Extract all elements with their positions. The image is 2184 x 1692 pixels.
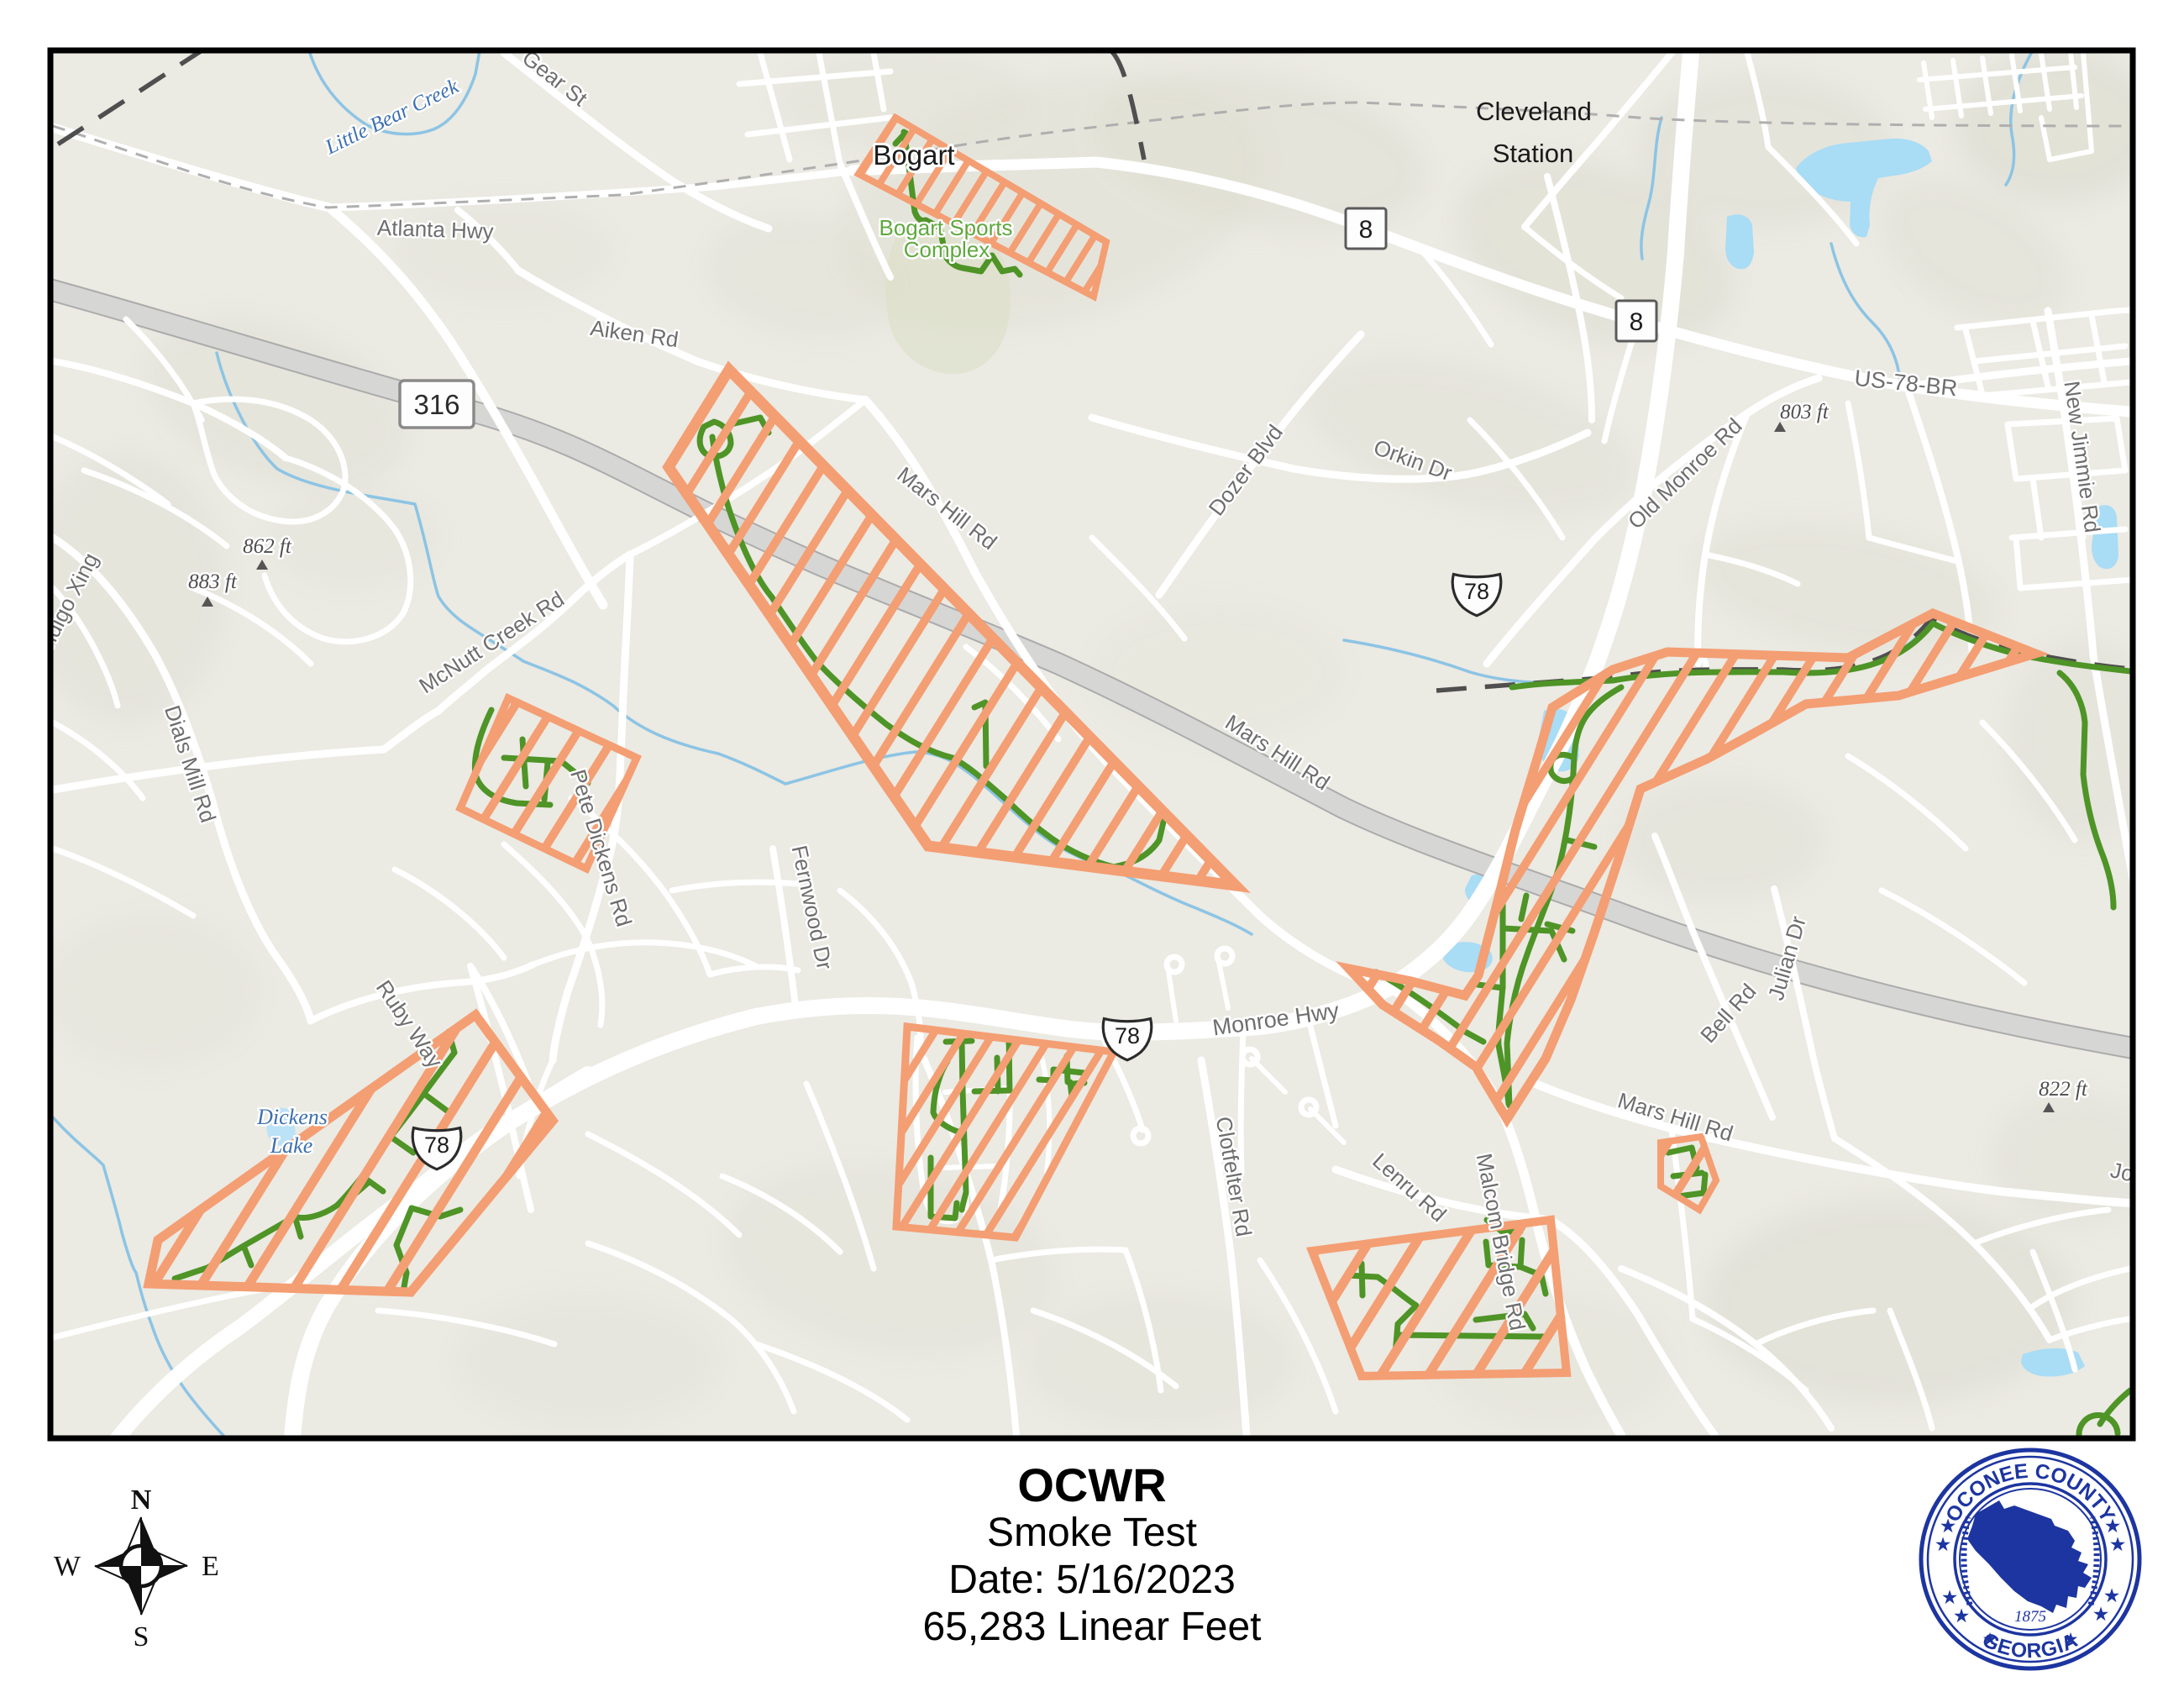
svg-text:★: ★: [1935, 1533, 1952, 1555]
svg-text:Bogart: Bogart: [873, 139, 954, 171]
svg-text:78: 78: [1464, 579, 1489, 604]
svg-text:8: 8: [1359, 216, 1373, 244]
svg-text:803 ft: 803 ft: [1780, 401, 1830, 423]
svg-text:78: 78: [424, 1132, 449, 1158]
svg-text:★: ★: [1953, 1605, 1971, 1626]
svg-text:Atlanta Hwy: Atlanta Hwy: [376, 215, 494, 244]
svg-text:OCWR: OCWR: [1017, 1458, 1166, 1511]
svg-text:822 ft: 822 ft: [2039, 1078, 2088, 1101]
svg-text:★: ★: [2063, 1630, 2079, 1649]
svg-text:E: E: [202, 1551, 219, 1582]
svg-text:65,283 Linear Feet: 65,283 Linear Feet: [923, 1605, 1262, 1649]
svg-text:N: N: [131, 1484, 152, 1516]
svg-text:883 ft: 883 ft: [188, 570, 238, 593]
svg-text:Station: Station: [1493, 139, 1574, 168]
svg-text:862 ft: 862 ft: [243, 535, 292, 558]
svg-text:S: S: [134, 1621, 150, 1653]
svg-text:Smoke Test: Smoke Test: [987, 1511, 1197, 1555]
svg-text:★: ★: [1982, 1630, 1998, 1649]
svg-text:★: ★: [2103, 1584, 2121, 1606]
svg-text:Dickens: Dickens: [256, 1105, 328, 1129]
svg-text:Cleveland: Cleveland: [1476, 97, 1592, 126]
svg-text:1875: 1875: [2014, 1608, 2046, 1626]
svg-text:316: 316: [413, 389, 459, 420]
svg-text:78: 78: [1115, 1023, 1140, 1048]
svg-text:★: ★: [2104, 1515, 2122, 1537]
svg-text:8: 8: [1630, 308, 1644, 336]
svg-text:W: W: [54, 1551, 81, 1582]
svg-text:Complex: Complex: [904, 237, 990, 262]
svg-text:Lake: Lake: [270, 1133, 313, 1158]
svg-text:Date: 5/16/2023: Date: 5/16/2023: [948, 1558, 1236, 1602]
